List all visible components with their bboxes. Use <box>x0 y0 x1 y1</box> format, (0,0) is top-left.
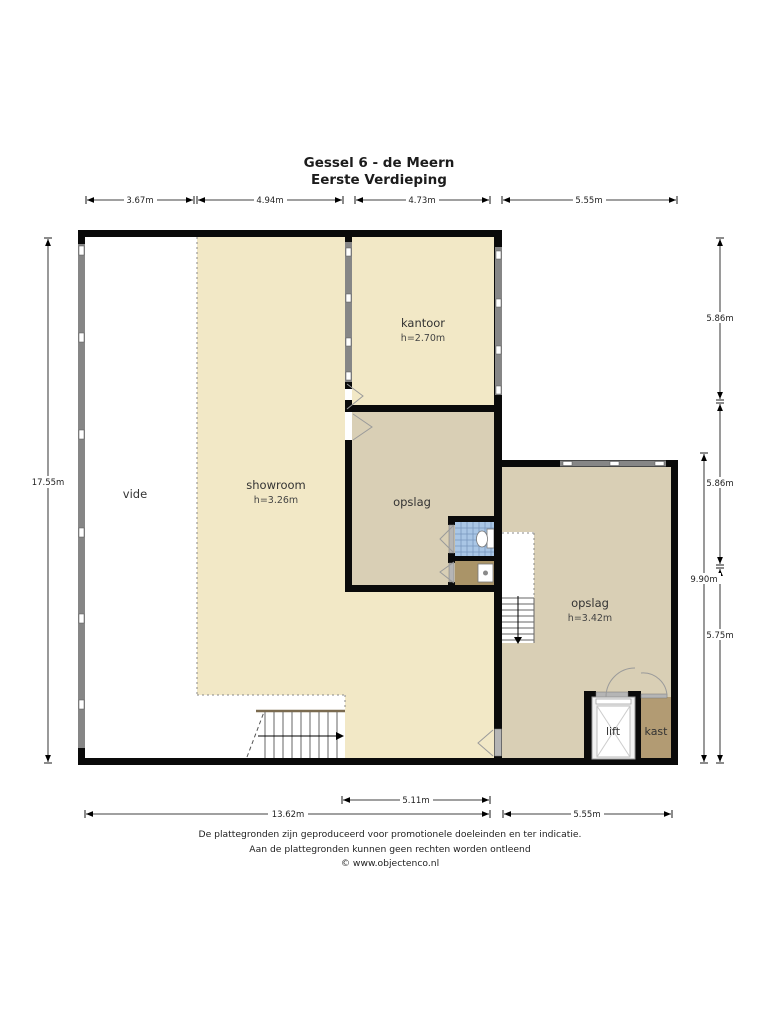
dim-right-1: 5.86m <box>706 314 733 324</box>
dim-top-2: 4.94m <box>256 196 283 206</box>
floor-plan-canvas: Gessel 6 - de Meern Eerste Verdieping <box>0 0 768 1024</box>
title-line1: Gessel 6 - de Meern <box>304 155 455 171</box>
dim-top-4: 5.55m <box>575 196 602 206</box>
floor-plan-page: Gessel 6 - de Meern Eerste Verdieping <box>0 0 768 1024</box>
label-lift: lift <box>606 725 621 738</box>
dim-bottom-3: 5.55m <box>573 810 600 820</box>
plan-title: Gessel 6 - de Meern Eerste Verdieping <box>304 155 455 188</box>
dim-right-4: 5.75m <box>706 631 733 641</box>
label-opslag-middle: opslag <box>393 495 431 509</box>
staircase-right <box>502 532 534 644</box>
toilet-room <box>455 522 494 556</box>
toilet-bowl <box>477 531 488 547</box>
label-showroom-height: h=3.26m <box>254 495 298 506</box>
glass-wall-kantoor-left <box>345 242 352 382</box>
label-kast: kast <box>645 725 669 738</box>
title-line2: Eerste Verdieping <box>311 172 447 188</box>
window-left-wall <box>78 244 85 748</box>
room-showroom-lower-floor <box>345 592 494 758</box>
footer-line3: © www.objectenco.nl <box>341 858 439 869</box>
staircase-bottom <box>247 710 345 758</box>
dim-top-1: 3.67m <box>126 196 153 206</box>
label-opslag-right: opslag <box>571 596 609 610</box>
footer-line1: De plattegronden zijn geproduceerd voor … <box>199 829 582 840</box>
dim-bottom-1: 5.11m <box>402 796 429 806</box>
label-vide: vide <box>123 487 147 501</box>
dim-right-2: 5.86m <box>706 479 733 489</box>
dim-bottom-2: 13.62m <box>272 810 305 820</box>
label-kantoor-height: h=2.70m <box>401 333 445 344</box>
label-showroom: showroom <box>246 478 305 492</box>
dim-left-1: 17.55m <box>32 478 65 488</box>
label-kantoor: kantoor <box>401 316 445 330</box>
toilet-tank <box>487 529 494 548</box>
dim-top-3: 4.73m <box>408 196 435 206</box>
window-kantoor-right <box>495 247 502 395</box>
dim-right-3: 9.90m <box>690 575 717 585</box>
footer-line2: Aan de plattegronden kunnen geen rechten… <box>249 844 530 855</box>
label-opslag-right-height: h=3.42m <box>568 613 612 624</box>
room-showroom-floor <box>197 237 345 695</box>
washroom <box>455 561 494 585</box>
room-floors <box>85 237 671 758</box>
footer-disclaimer: De plattegronden zijn geproduceerd voor … <box>199 829 582 869</box>
